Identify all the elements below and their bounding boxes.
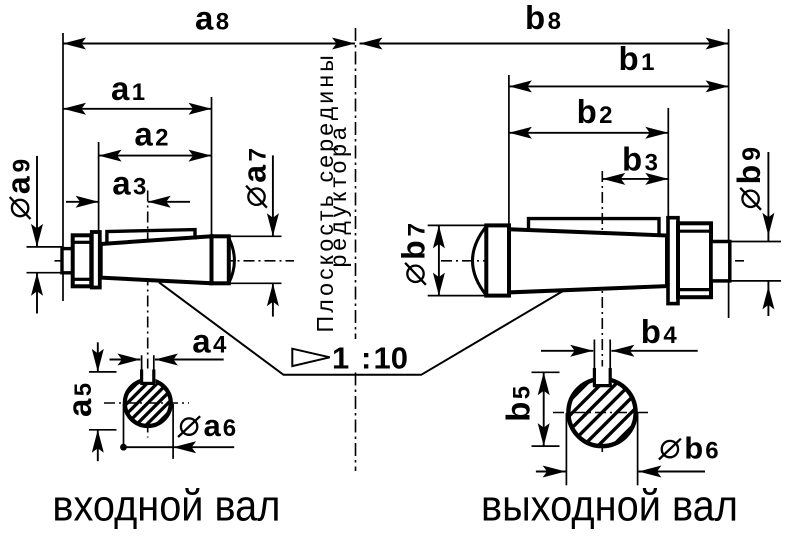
svg-text:редуктора: редуктора	[325, 123, 351, 267]
svg-text:входной вал: входной вал	[52, 482, 280, 531]
svg-text:выходной вал: выходной вал	[481, 481, 738, 530]
svg-text:1:10: 1:10	[332, 341, 408, 376]
